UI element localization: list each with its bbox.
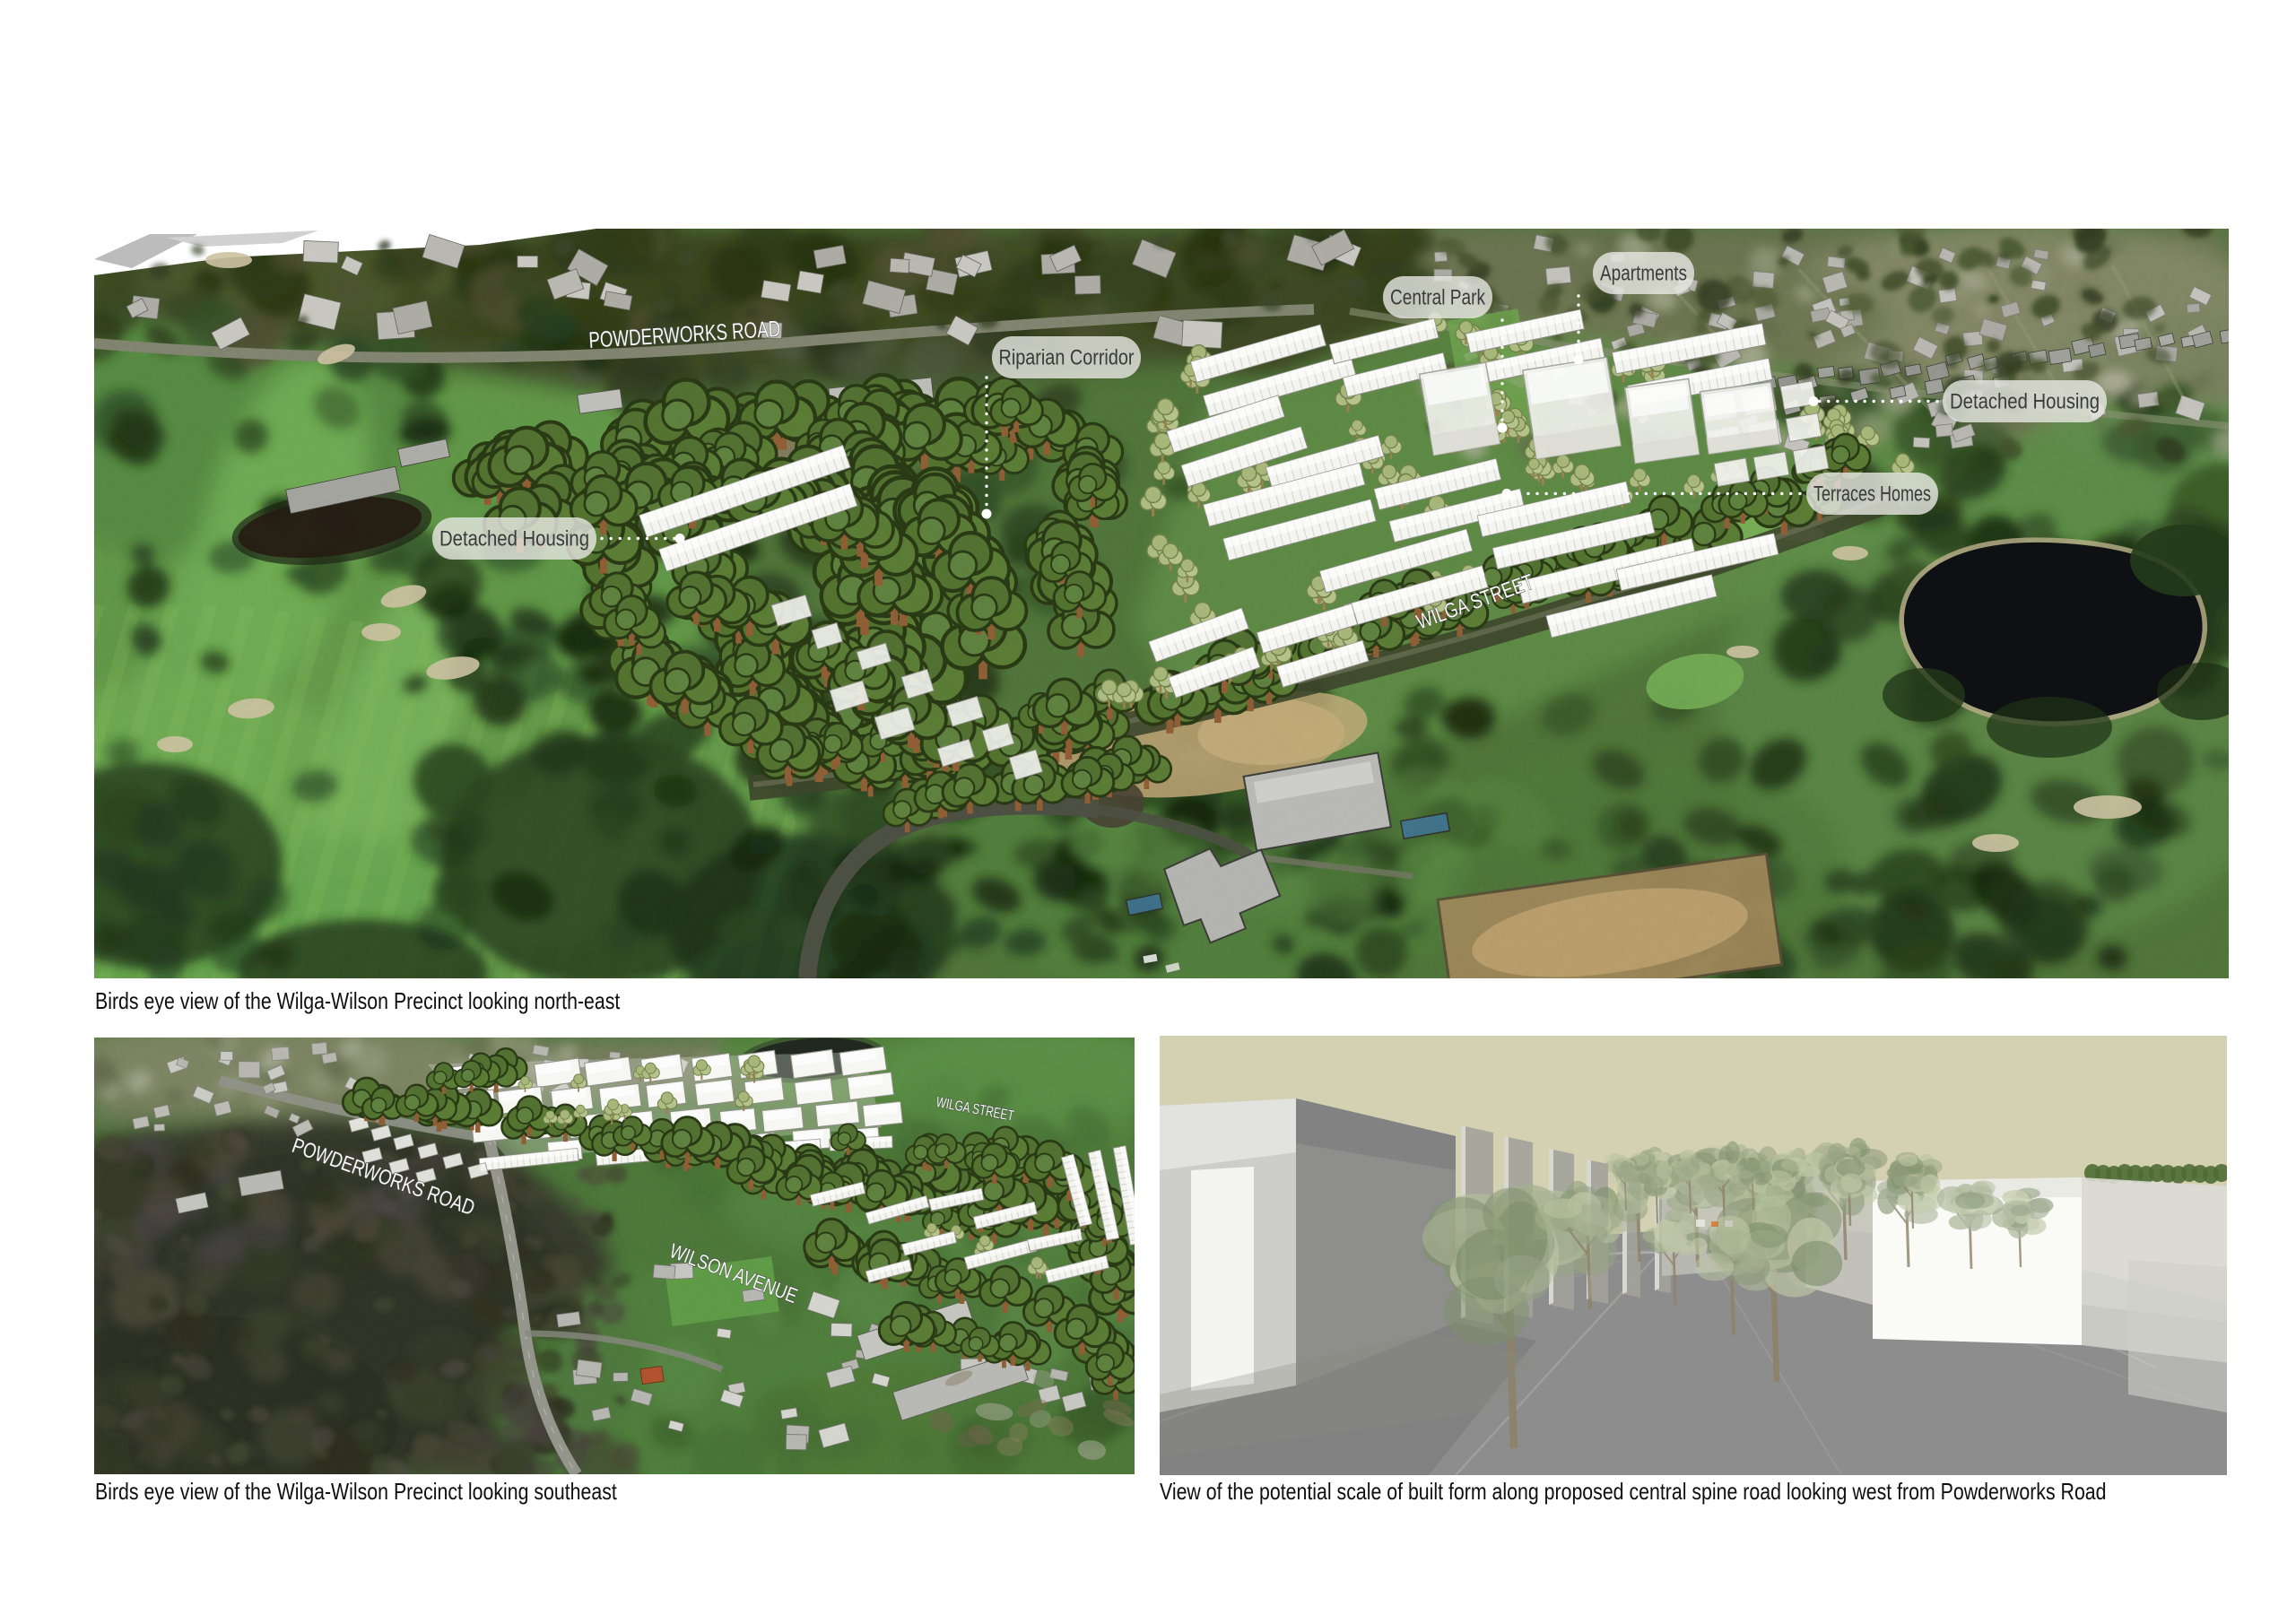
svg-text:Riparian Corridor: Riparian Corridor [999,346,1135,370]
svg-text:Terraces Homes: Terraces Homes [1813,482,1931,507]
svg-text:Apartments: Apartments [1600,262,1687,286]
svg-text:Detached Housing: Detached Housing [1950,390,2100,414]
svg-text:Detached Housing: Detached Housing [439,527,589,551]
svg-text:Central Park: Central Park [1390,286,1486,310]
